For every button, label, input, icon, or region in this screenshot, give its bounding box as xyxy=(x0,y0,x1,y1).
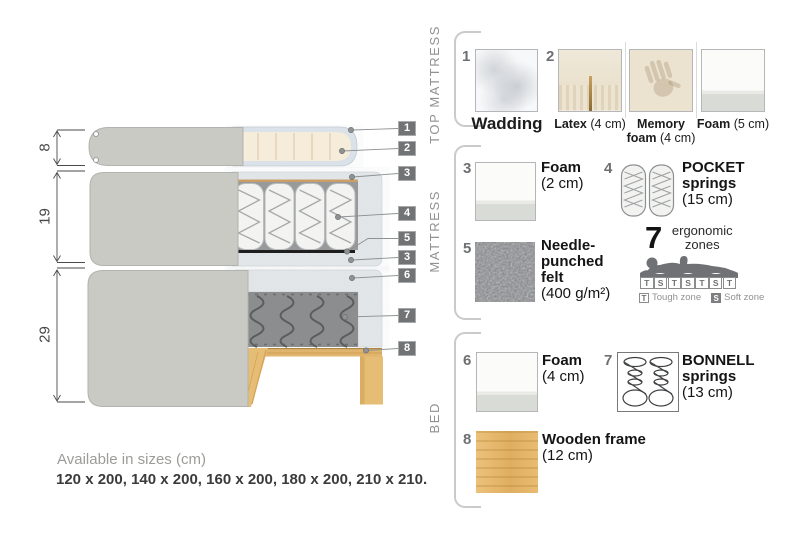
callout-5: 5 xyxy=(398,231,416,246)
soft-zone-key-label: Soft zone xyxy=(724,292,764,303)
pocket-springs-image xyxy=(617,160,678,221)
memory-foam-caption: Memory foam (4 cm) xyxy=(622,117,700,146)
felt-texture-icon xyxy=(475,242,535,302)
callout-7: 7 xyxy=(398,308,416,323)
mattress-cutaway xyxy=(232,172,382,266)
wooden-frame-image xyxy=(476,431,538,493)
callout-3b: 3 xyxy=(398,250,416,265)
foam-4cm-image xyxy=(476,352,538,412)
available-sizes-title: Available in sizes (cm) xyxy=(57,451,206,468)
legend-num-latex: 2 xyxy=(546,48,554,65)
callout-2: 2 xyxy=(398,141,416,156)
dimension-top-mattress: 8 xyxy=(37,133,54,163)
tough-zone-key-label: Tough zone xyxy=(652,292,701,303)
needle-felt-text: Needle-punched felt(400 g/m²) xyxy=(541,238,607,302)
dimension-bed: 29 xyxy=(37,320,54,350)
callout-8: 8 xyxy=(398,341,416,356)
dimension-mattress: 19 xyxy=(37,202,54,232)
needle-felt-line xyxy=(232,250,355,253)
foam-4cm-text: Foam(4 cm) xyxy=(542,353,612,385)
latex-image xyxy=(558,49,622,112)
section-label-bed: BED xyxy=(427,402,442,434)
callout-4: 4 xyxy=(398,206,416,221)
legend-num-felt: 5 xyxy=(463,240,471,257)
bonnell-springs-image xyxy=(617,352,679,412)
callout-1: 1 xyxy=(398,121,416,136)
wooden-frame-text: Wooden frame(12 cm) xyxy=(542,432,672,464)
latex-caption: Latex (4 cm) xyxy=(546,117,634,131)
wadding-caption: Wadding xyxy=(462,114,552,134)
bed-cover xyxy=(88,271,248,407)
ergonomic-zone-count: 7 xyxy=(645,224,662,252)
callout-6: 6 xyxy=(398,268,416,283)
top-mattress-cover xyxy=(89,128,243,166)
bonnell-springs-text: BONNELL springs(13 cm) xyxy=(682,353,767,401)
bed-construction-infographic: 8 19 29 1 2 3 4 5 3 6 7 8 TOP MATTRESS M… xyxy=(0,0,800,533)
pocket-springs-icon xyxy=(617,160,678,221)
sleeping-person-icon xyxy=(640,252,738,278)
zone-box: T xyxy=(668,277,682,289)
memory-foam-image xyxy=(629,49,693,112)
legend-num-wadding: 1 xyxy=(462,48,470,65)
section-label-top-mattress: TOP MATTRESS xyxy=(427,25,442,144)
zone-box: S xyxy=(654,277,668,289)
legend-num-pocket: 4 xyxy=(604,160,612,177)
soft-zone-key-icon: S xyxy=(711,293,721,303)
zone-boxes: T S T S T S T xyxy=(640,277,737,289)
ergonomic-zones-header: 7 ergonomic zones xyxy=(645,224,738,252)
callout-3: 3 xyxy=(398,166,416,181)
foam-5cm-caption: Foam (5 cm) xyxy=(692,117,774,131)
latex-crack xyxy=(589,76,592,111)
needle-felt-image xyxy=(475,242,535,302)
zone-box: T xyxy=(723,277,737,289)
hand-imprint-icon xyxy=(630,50,692,111)
available-sizes-list: 120 x 200, 140 x 200, 160 x 200, 180 x 2… xyxy=(56,471,427,488)
pocket-springs-text: POCKET springs(15 cm) xyxy=(682,160,762,208)
foam-2cm-image xyxy=(475,162,536,221)
bonnell-springs-icon xyxy=(618,353,678,411)
foam-5cm-image xyxy=(701,49,765,112)
zone-box: S xyxy=(709,277,723,289)
mattress-cover xyxy=(90,173,238,266)
wadding-image xyxy=(475,49,538,112)
tough-zone-key-icon: T xyxy=(639,293,649,303)
foam-2cm-text: Foam(2 cm) xyxy=(541,160,611,192)
legend-num-foam4: 6 xyxy=(463,352,471,369)
legend-num-wood: 8 xyxy=(463,431,471,448)
zone-box: T xyxy=(640,277,654,289)
legend-num-foam2: 3 xyxy=(463,160,471,177)
zone-key: T Tough zone S Soft zone xyxy=(639,292,764,303)
zone-box: S xyxy=(681,277,695,289)
legend-separator xyxy=(625,42,626,118)
legend-separator xyxy=(696,42,697,118)
legend-num-bonnell: 7 xyxy=(604,352,612,369)
dimension-lines xyxy=(54,130,86,402)
zone-box: T xyxy=(695,277,709,289)
section-label-mattress: MATTRESS xyxy=(427,190,442,273)
top-mattress-cutaway xyxy=(233,127,357,166)
ergonomic-zone-label: ergonomic zones xyxy=(666,224,738,251)
